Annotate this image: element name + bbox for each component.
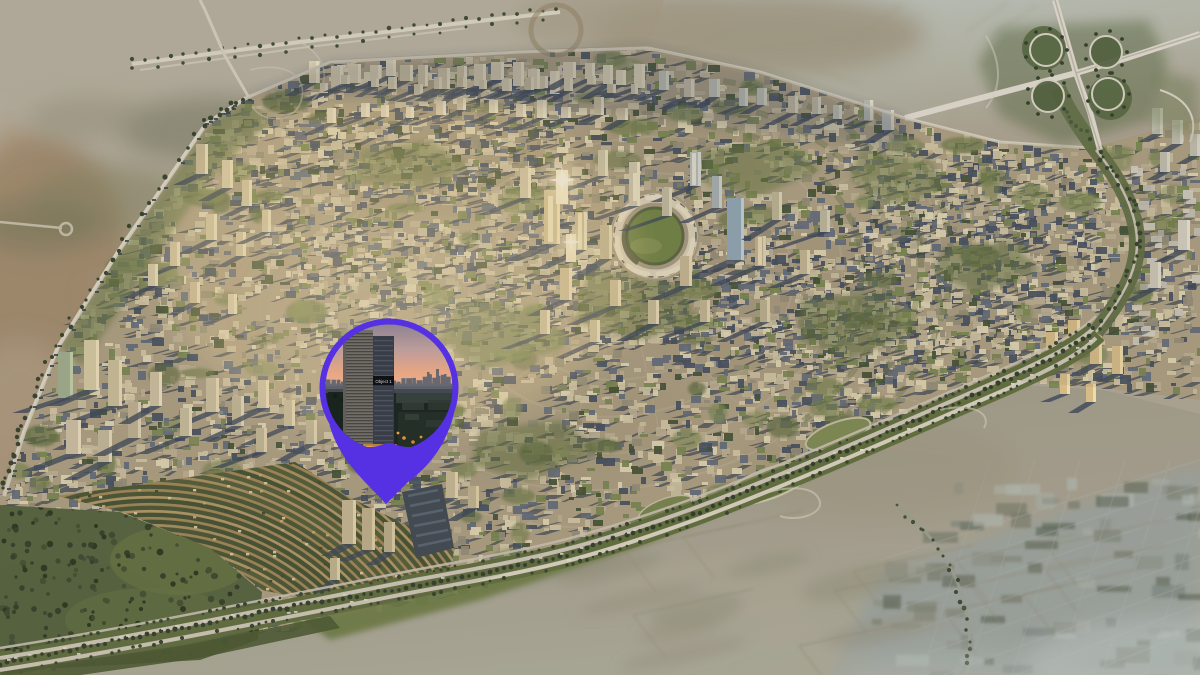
svg-text:Object 1: Object 1 bbox=[375, 379, 392, 384]
